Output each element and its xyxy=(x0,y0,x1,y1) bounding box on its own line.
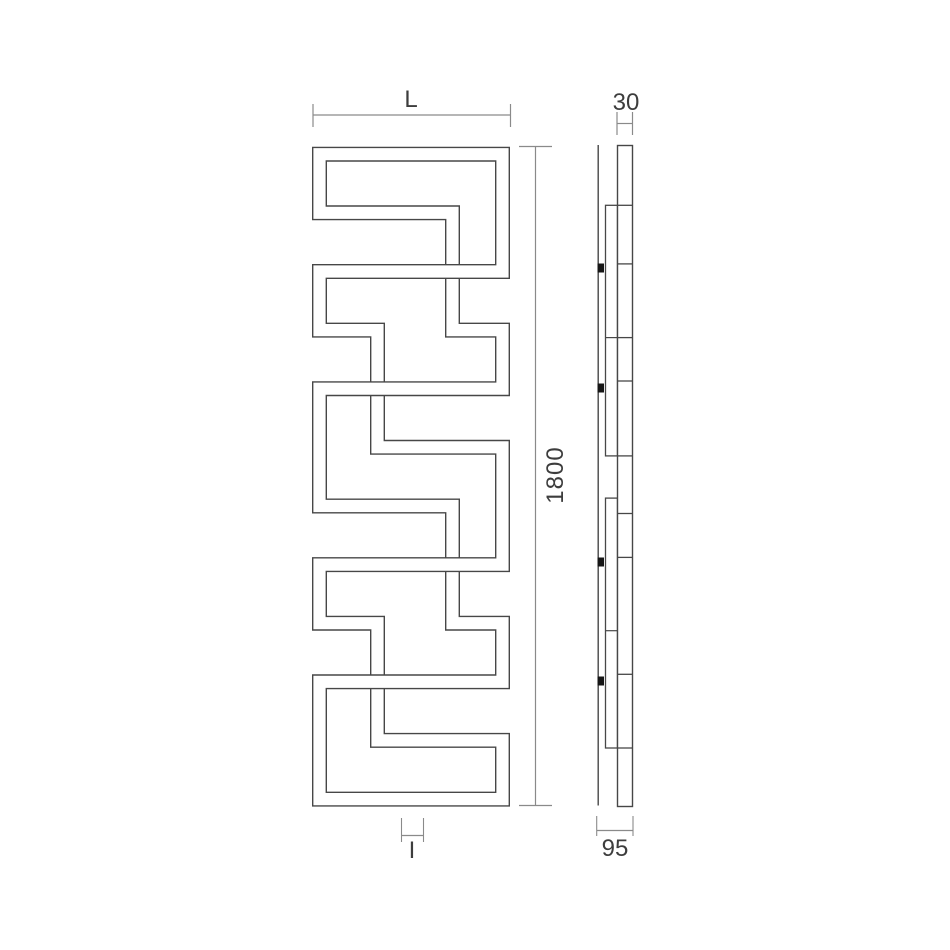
wall-bracket xyxy=(598,384,605,393)
wall-bracket xyxy=(598,677,605,686)
drawing-background xyxy=(0,0,950,950)
wall-bracket xyxy=(598,264,605,273)
radiator-technical-drawing: L18003095I xyxy=(0,0,950,950)
bracket-rail-segment xyxy=(606,205,618,456)
dimension-label-connection: I xyxy=(409,837,416,864)
dimension-label-width: L xyxy=(404,86,417,113)
bracket-rail-segment xyxy=(606,498,618,748)
dimension-label-wall_distance: 95 xyxy=(602,835,629,862)
dimension-label-depth: 30 xyxy=(613,89,640,116)
radiator-body-side xyxy=(618,146,633,807)
wall-bracket xyxy=(598,558,605,567)
datasheet-page: L18003095I xyxy=(0,0,950,950)
dimension-label-height: 1800 xyxy=(542,446,569,503)
